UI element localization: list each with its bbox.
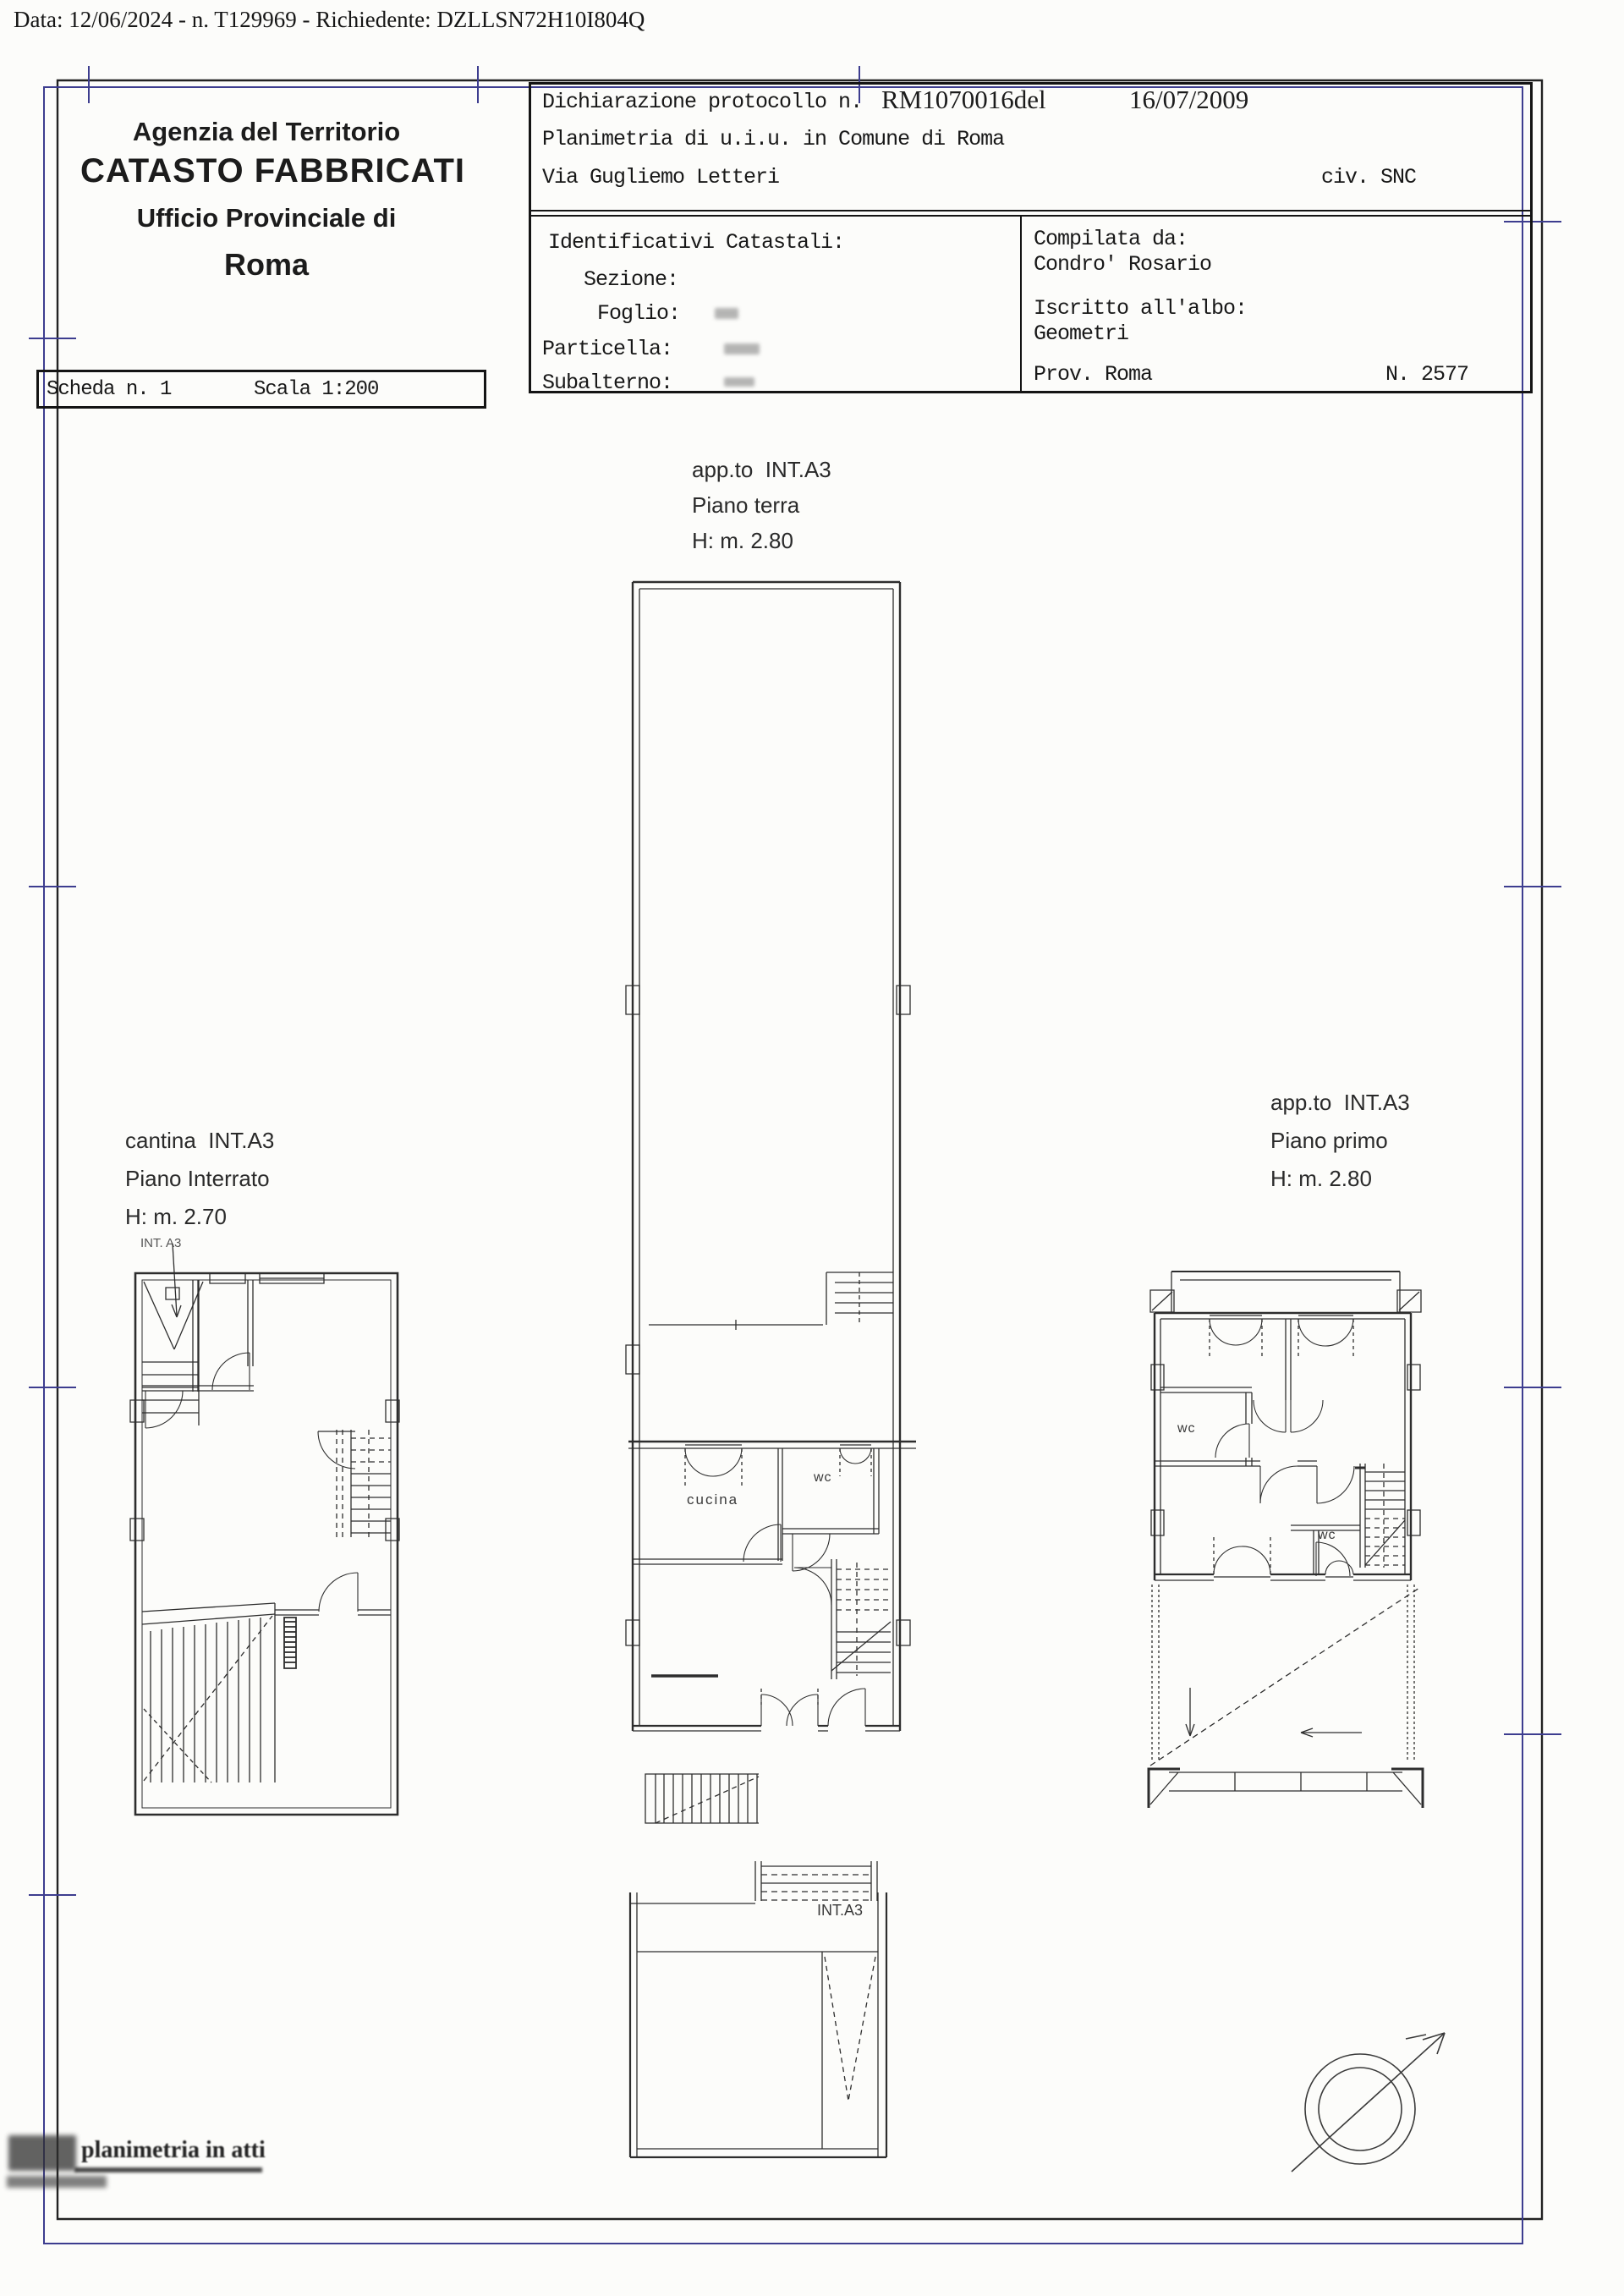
agency-city: Roma (80, 247, 453, 283)
agency-catasto: CATASTO FABBRICATI (80, 152, 453, 190)
catasto-title: Identificativi Catastali: (548, 230, 844, 255)
basement-bottom-stair (142, 1603, 275, 1782)
ground-garden-walls (626, 582, 910, 1731)
planimetria-line: Planimetria di u.i.u. in Comune di Roma (542, 127, 1004, 151)
first-top-balcony (1150, 1272, 1421, 1313)
ground-landing-platform (755, 1861, 877, 1901)
first-balcony (1149, 1585, 1423, 1808)
ground-plan-title: app.to INT.A3 (692, 457, 831, 483)
sheet-scale: Scala 1:200 (254, 378, 378, 401)
first-plan-height: H: m. 2.80 (1270, 1166, 1372, 1192)
sheet-number: Scheda n. 1 (47, 378, 171, 401)
particella-value-smudge (724, 343, 760, 354)
foglio-value-smudge (715, 308, 738, 319)
first-wc-upper (1160, 1387, 1252, 1466)
first-plan-title: app.to INT.A3 (1270, 1090, 1410, 1116)
first-wc-lower (1291, 1525, 1360, 1576)
first-central-doors (1254, 1400, 1323, 1432)
civic-number: civ. SNC (1321, 165, 1416, 190)
ground-stair (831, 1559, 891, 1679)
catasto-particella: Particella: (542, 337, 672, 361)
stamp-text: planimetria in atti (81, 2137, 266, 2164)
compiler-reg-number: N. 2577 (1385, 362, 1468, 387)
first-plan-floor: Piano primo (1270, 1128, 1388, 1154)
compiler-name: Condro' Rosario (1034, 252, 1211, 277)
request-data-line: Data: 12/06/2024 - n. T129969 - Richiede… (14, 7, 645, 33)
street-line: Via Gugliemo Letteri (542, 165, 779, 190)
basement-plan-title: cantina INT.A3 (125, 1128, 274, 1154)
first-bottom-windows (1155, 1537, 1411, 1580)
catasto-sezione: Sezione: (584, 267, 678, 292)
first-hall-doors (1260, 1466, 1354, 1503)
document-page: Data: 12/06/2024 - n. T129969 - Richiede… (0, 0, 1624, 2296)
ground-porch-stair (645, 1774, 759, 1823)
stamp-blob (8, 2135, 76, 2171)
subalterno-value-smudge (724, 377, 754, 387)
catasto-subalterno: Subalterno: (542, 371, 672, 395)
protocol-date: 16/07/2009 (1129, 85, 1248, 115)
basement-plan-floor: Piano Interrato (125, 1166, 270, 1192)
basement-door-lower (319, 1573, 358, 1612)
first-floor-plan (1133, 1265, 1438, 1823)
stamp-underline-2 (7, 2176, 107, 2188)
basement-hatch-block (284, 1618, 296, 1668)
first-stair (1355, 1464, 1405, 1568)
basement-top-stair (142, 1280, 203, 1425)
agency-name: Agenzia del Territorio (80, 117, 453, 147)
compiler-albo-label: Iscritto all'albo: (1034, 296, 1247, 321)
declaration-divider-1 (531, 210, 1530, 211)
compiler-prov: Prov. Roma (1034, 362, 1152, 387)
first-top-windows (1210, 1316, 1353, 1358)
ground-floor-plan (622, 571, 916, 2200)
stamp-underline (74, 2167, 262, 2172)
ground-entry-doors (633, 1689, 900, 1731)
declaration-divider-2 (531, 215, 1530, 217)
ground-plan-height: H: m. 2.80 (692, 528, 793, 554)
basement-plan-height: H: m. 2.70 (125, 1204, 227, 1230)
ground-plan-floor: Piano terra (692, 492, 799, 519)
declaration-column-divider (1020, 217, 1022, 391)
ground-top-wall (628, 1442, 916, 1489)
basement-floor-plan (118, 1235, 410, 1827)
catasto-foglio: Foglio: (597, 301, 680, 326)
compiler-albo-value: Geometri (1034, 321, 1128, 346)
ground-garden-steps (826, 1272, 893, 1325)
agency-office: Ufficio Provinciale di (80, 203, 453, 233)
ground-garage (630, 1892, 886, 2157)
protocol-number: RM1070016del (881, 85, 1046, 115)
compiler-title: Compilata da: (1034, 227, 1188, 251)
basement-right-stair (318, 1430, 391, 1537)
north-arrow-icon (1277, 2013, 1480, 2200)
protocol-label: Dichiarazione protocollo n. (542, 90, 862, 114)
